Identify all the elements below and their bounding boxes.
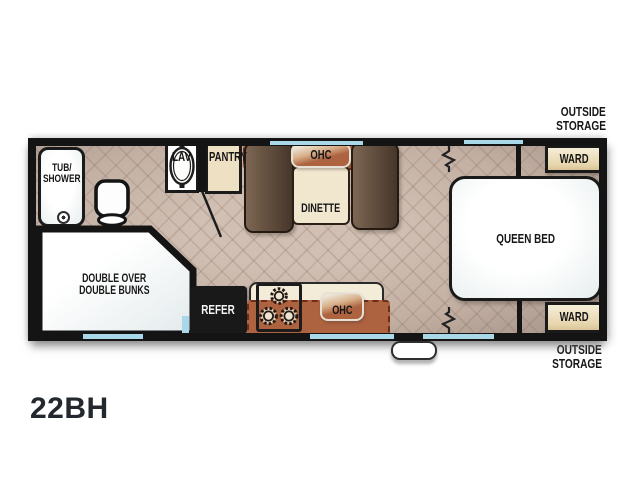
dinette-ohc-label: OHC [310,149,331,162]
window-bottom-bunk [83,334,143,339]
wardrobe-rear: WARD [545,302,603,333]
tub-label-line2: SHOWER [43,174,81,185]
dinette-bench-left [244,142,294,233]
tub-shower-label: TUB/ SHOWER [35,160,88,188]
pantry: PANTRY [205,143,242,194]
kitchen-ohc-tag: OHC [320,292,364,321]
ward-front-label: WARD [559,153,588,166]
ward-rear-label: WARD [559,311,588,324]
bunk-label-line2: DOUBLE BUNKS [79,286,149,298]
tub-shower: TUB/ SHOWER [38,147,85,227]
window-bottom-entry [423,334,494,339]
bathroom-partition-wall [198,140,206,192]
queen-bed-label: QUEEN BED [496,232,555,246]
hookup-zigzag-front-icon [441,142,457,172]
bedroom-wall-stub-front [516,145,521,177]
model-code: 22BH [30,392,109,426]
window-bottom-kitchen [310,334,394,339]
window-top-bedroom [464,140,523,145]
stove-cooktop [256,283,302,332]
wall-left [28,138,36,341]
refer-label: REFER [202,303,235,317]
dinette-table-label: DINETTE [301,202,340,214]
lav-label: LAV [172,150,191,164]
dinette-table: DINETTE [292,166,350,225]
pantry-label: PANTRY [209,151,247,164]
bunk-label: DOUBLE OVER DOUBLE BUNKS [58,272,170,300]
outside-storage-front-line2: STORAGE [556,119,606,133]
refrigerator: REFER [190,286,247,334]
wall-right [599,138,607,341]
dinette-ohc-tag: OHC [291,143,351,168]
wardrobe-front: WARD [545,145,603,173]
stove-burners-icon [259,286,299,329]
dinette-bench-right [351,142,399,230]
trailer-shell: DINETTE OHC PANTRY LAV [28,138,607,341]
entry-step [391,341,437,360]
outside-storage-rear-line1: OUTSIDE [557,343,602,357]
outside-storage-front-label: OUTSIDE STORAGE [542,105,606,132]
window-top-dinette [270,141,363,146]
queen-bed: QUEEN BED [449,176,602,301]
kitchen-ohc-label: OHC [332,304,352,316]
bedroom-wall-stub-rear [517,301,522,334]
outside-storage-rear-line2: STORAGE [552,357,602,371]
bunk-side-window [182,316,189,334]
floorplan-page: OUTSIDE STORAGE OUTSIDE STORAGE DINETTE … [0,0,640,480]
lav-sink: LAV [165,140,199,193]
outside-storage-front-line1: OUTSIDE [561,105,606,119]
outside-storage-rear-label: OUTSIDE STORAGE [538,343,602,370]
lav-label-wrap: LAV [168,149,196,165]
